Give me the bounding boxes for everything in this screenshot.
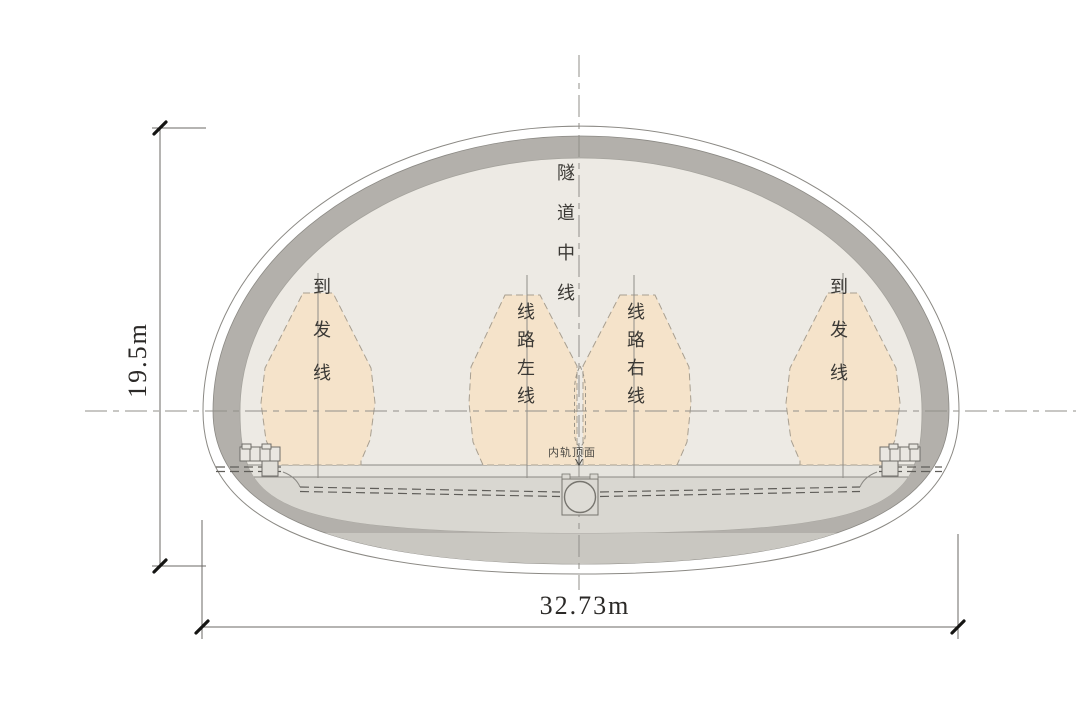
- drain-tab-left: [562, 474, 570, 479]
- drain-pipe-circle: [565, 482, 596, 513]
- siding-track-label-left: 到发线: [313, 277, 331, 383]
- drain-tab-right: [590, 474, 598, 479]
- diagram-canvas: 内轨顶面 隧道中线: [0, 0, 1085, 711]
- inner-rail-top-label: 内轨顶面: [548, 445, 596, 459]
- height-dimension-text: 19.5m: [123, 322, 152, 398]
- width-dimension-text: 32.73m: [540, 591, 631, 620]
- center-drain: [562, 474, 598, 515]
- siding-track-label-right: 到发线: [830, 277, 848, 383]
- tunnel-cross-section-diagram: 内轨顶面 隧道中线: [0, 0, 1085, 711]
- height-dimension: 19.5m: [123, 122, 206, 572]
- rail-level-strip: [220, 465, 942, 477]
